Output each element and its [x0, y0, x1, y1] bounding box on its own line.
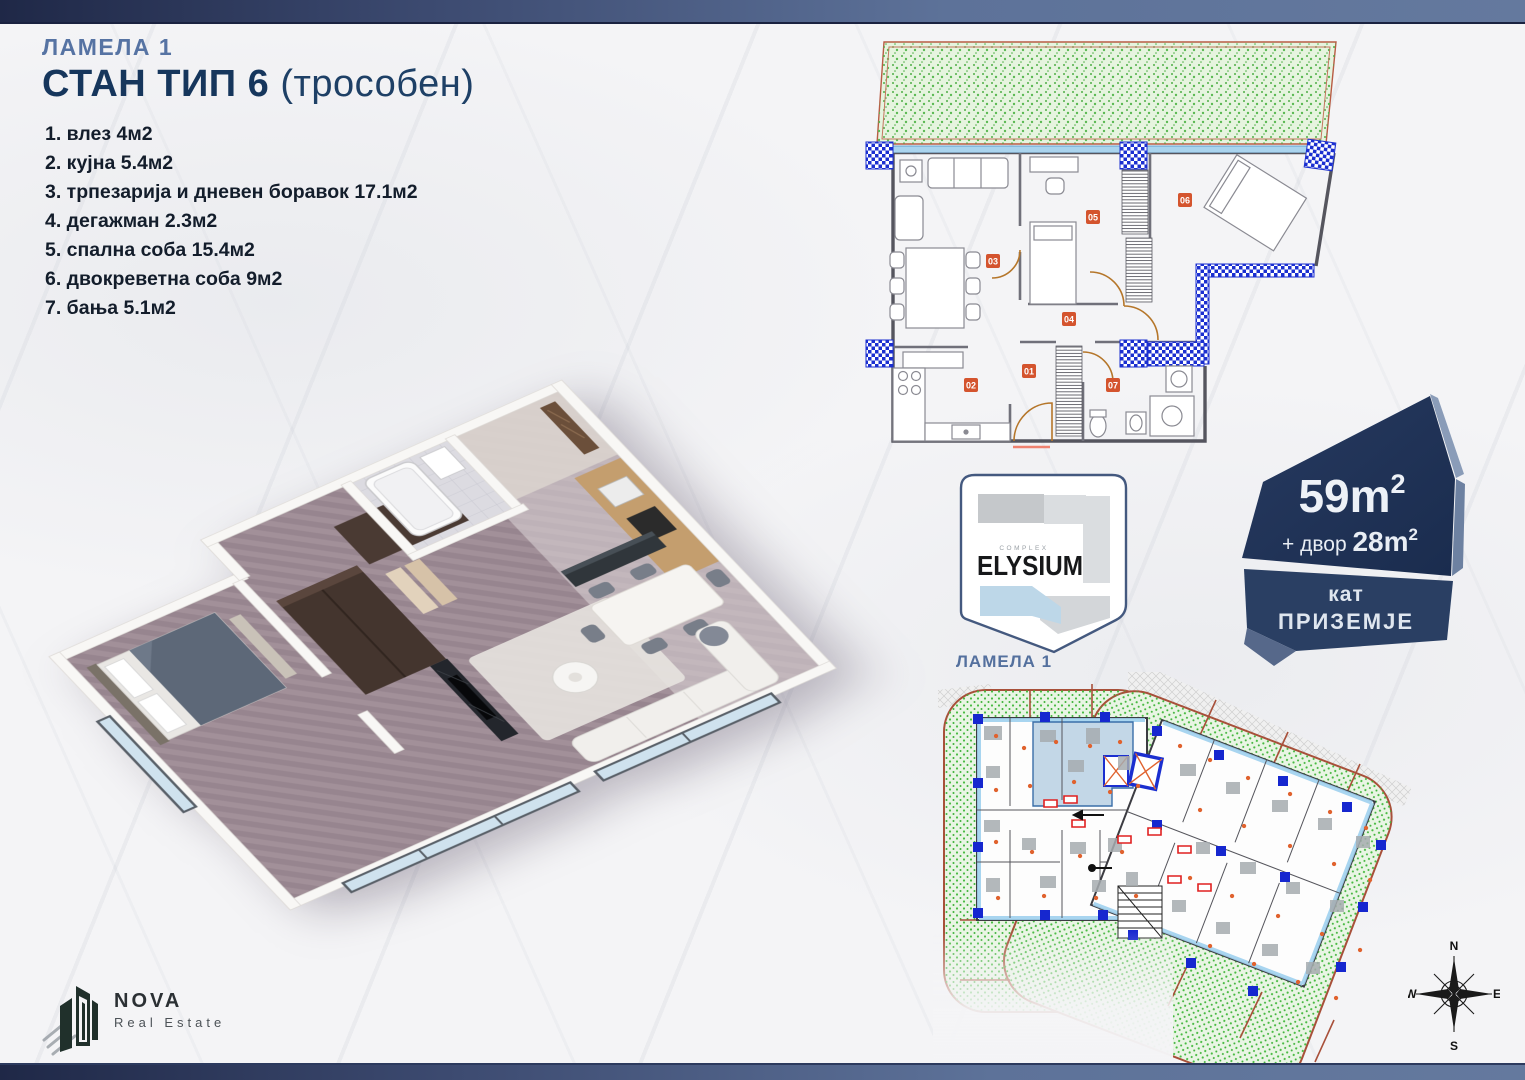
compass-w: W [1408, 987, 1417, 1001]
svg-text:04: 04 [1064, 315, 1074, 325]
nova-brand-text: NOVA [114, 990, 225, 1013]
compass-s: S [1450, 1039, 1458, 1053]
room-list-item: 3. трпезарија и дневен боравок 17.1м2 [45, 178, 418, 207]
site-lamela-label: ЛАМЕЛА 1 [956, 652, 1052, 672]
apartment-type-title: СТАН ТИП 6 [42, 63, 269, 105]
window-band [893, 146, 1323, 153]
elysium-brand: ELYSIUM [977, 550, 1083, 581]
render-3d-svg [28, 389, 823, 902]
compass-points [1416, 958, 1492, 1030]
compass-rose: N E S W [1408, 938, 1500, 1056]
lamela-heading: ЛАМЕЛА 1 [42, 34, 474, 61]
apartment-type-subtitle: (трособен) [280, 63, 474, 105]
badge-floor-label: кат [1328, 583, 1363, 606]
compass-n: N [1450, 939, 1459, 953]
bottom-accent-bar [0, 1063, 1525, 1080]
room-list-item: 2. кујна 5.4м2 [45, 149, 418, 178]
elysium-logo: COMPLEX ELYSIUM [958, 472, 1134, 662]
elevators [1104, 753, 1162, 789]
area-badge: 59m2 + двор 28m2 кат ПРИЗЕМЈЕ [1234, 388, 1510, 680]
room-list-item: 5. спална соба 15.4м2 [45, 236, 418, 265]
room-area-list: 1. влез 4м2 2. кујна 5.4м2 3. трпезарија… [45, 120, 418, 323]
nova-building-icon [40, 962, 104, 1058]
svg-text:02: 02 [966, 381, 976, 391]
room-list-item: 1. влез 4м2 [45, 120, 418, 149]
svg-text:01: 01 [1024, 367, 1034, 377]
svg-text:07: 07 [1108, 381, 1118, 391]
svg-text:05: 05 [1088, 213, 1098, 223]
nova-logo: NOVA Real Estate [40, 962, 225, 1058]
site-plan [933, 670, 1411, 1072]
badge-area-text: 59m2 [1298, 469, 1405, 522]
site-fade [933, 930, 1173, 1072]
compass-e: E [1493, 987, 1500, 1001]
badge-floor-value: ПРИЗЕМЈЕ [1278, 609, 1414, 634]
nova-subtitle-text: Real Estate [114, 1015, 225, 1030]
room-list-item: 4. дегажман 2.3м2 [45, 207, 418, 236]
yard-garden [877, 42, 1336, 144]
brochure-page: ЛАМЕЛА 1 СТАН ТИП 6 (трособен) 1. влез 4… [0, 0, 1525, 1080]
title-block: ЛАМЕЛА 1 СТАН ТИП 6 (трособен) [42, 34, 474, 106]
top-accent-bar [0, 0, 1525, 24]
render-3d-floorplan [8, 322, 853, 994]
room-list-item: 7. бања 5.1м2 [45, 294, 418, 323]
svg-text:03: 03 [988, 257, 998, 267]
svg-text:06: 06 [1180, 196, 1190, 206]
room-list-item: 6. двокреветна соба 9м2 [45, 265, 418, 294]
